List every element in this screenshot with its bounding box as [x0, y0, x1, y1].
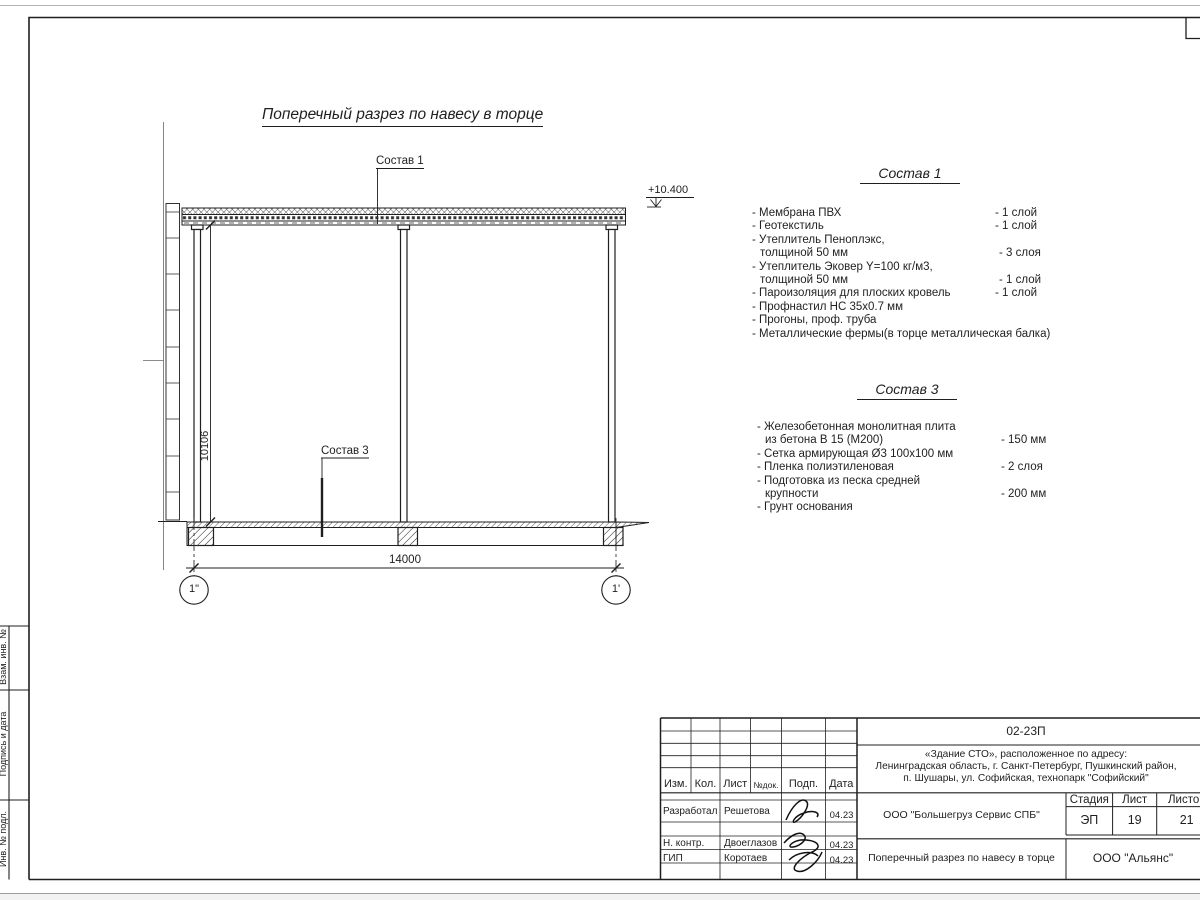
tb-header-data: Дата — [826, 778, 858, 790]
spec-line: - Прогоны, проф. труба — [752, 314, 876, 327]
tb-date-gip: 04.23 — [827, 855, 857, 866]
dimension-width: 14000 — [380, 554, 430, 566]
spec-line: толщиной 50 мм — [760, 274, 848, 287]
spec-line: из бетона В 15 (М200) — [765, 434, 883, 447]
spec-value: - 1 слой — [995, 207, 1037, 220]
tb-name-gip: Коротаев — [724, 853, 767, 864]
spec-line: крупности — [765, 488, 818, 501]
tb-project-line3: п. Шушары, ул. Софийская, технопарк "Соф… — [857, 773, 1195, 784]
tb-sheets-label: Листов — [1157, 794, 1200, 806]
spec-line: - Грунт основания — [757, 501, 853, 514]
spec-value: - 1 слой — [999, 274, 1041, 287]
outside-sheet — [0, 894, 1200, 900]
tb-date-control: 04.23 — [827, 840, 857, 851]
spec1-heading: Состав 1 — [860, 165, 960, 184]
tb-header-list: Лист — [720, 778, 751, 790]
tb-sheet-title: Поперечный разрез по навесу в торце — [857, 852, 1066, 864]
elevation-mark — [646, 198, 694, 208]
spec-line: - Металлические фермы(в торце металличес… — [752, 328, 1050, 341]
tb-name-control: Двоеглазов — [724, 838, 777, 849]
tb-stage-label: Стадия — [1066, 794, 1113, 806]
corner-stamp-box — [1186, 18, 1200, 39]
drawing-title: Поперечный разрез по навесу в торце — [262, 106, 543, 127]
tb-doc-number: 02-23П — [857, 724, 1195, 738]
spec-value: - 3 слоя — [999, 247, 1041, 260]
tb-company: ООО "Альянс" — [1066, 851, 1200, 865]
spec-value: - 1 слой — [995, 220, 1037, 233]
tb-header-kol: Кол. — [691, 778, 720, 790]
columns — [192, 225, 618, 522]
spec-line: толщиной 50 мм — [760, 247, 848, 260]
spec-line: - Пароизоляция для плоских кровель — [752, 287, 951, 300]
side-stamp-label: Подпись и дата — [0, 704, 8, 784]
tb-sheets-value: 21 — [1157, 813, 1200, 827]
drawing-sheet: Поперечный разрез по навесу в торце Сост… — [0, 0, 1200, 900]
leader-label-sostav1: Состав 1 — [376, 155, 424, 167]
tb-name-developer: Решетова — [724, 806, 770, 817]
tb-role-developer: Разработал — [663, 806, 717, 817]
tb-customer: ООО "Большегруз Сервис СПБ" — [857, 809, 1066, 821]
tb-header-izm: Изм. — [661, 778, 692, 790]
tb-role-control: Н. контр. — [663, 838, 704, 849]
spec-value: - 1 слой — [995, 287, 1037, 300]
leader-label-sostav3: Состав 3 — [321, 445, 369, 457]
side-stamp-label: Взам. инв. № — [0, 627, 8, 687]
axis-label-left: 1" — [180, 583, 208, 595]
footing-right — [604, 528, 624, 546]
dimension-height: 10106 — [199, 424, 211, 468]
signature-developer — [786, 800, 818, 822]
footing-middle — [398, 528, 418, 546]
tb-header-doc: №док. — [751, 780, 782, 790]
roof-section — [182, 208, 626, 225]
spec-value: - 150 мм — [1001, 434, 1046, 447]
elevation-label: +10.400 — [648, 184, 688, 196]
tb-project-line1: «Здание СТО», расположенное по адресу: — [857, 749, 1195, 760]
axis-label-right: 1' — [602, 583, 630, 595]
spec3-heading: Состав 3 — [857, 381, 957, 400]
spec-line: - Пленка полиэтиленовая — [757, 461, 894, 474]
tb-project-line2: Ленинградская область, г. Санкт-Петербур… — [857, 761, 1195, 772]
adjacent-wall — [143, 122, 180, 570]
spec-line: - Утеплитель Пеноплэкс, — [752, 234, 885, 247]
spec-line: - Профнастил НС 35х0.7 мм — [752, 301, 903, 314]
tb-date-developer: 04.23 — [827, 810, 857, 821]
tb-role-gip: ГИП — [663, 853, 683, 864]
spec-value: - 200 мм — [1001, 488, 1046, 501]
spec-line: - Геотекстиль — [752, 220, 824, 233]
signature-control — [784, 833, 822, 871]
side-stamp-label: Инв. № подл. — [0, 804, 8, 874]
tb-header-podp: Подп. — [782, 778, 826, 790]
footing-left — [189, 528, 214, 546]
spec-value: - 2 слоя — [1001, 461, 1043, 474]
spec-line: - Железобетонная монолитная плита — [757, 421, 956, 434]
spec-line: - Утеплитель Эковер Y=100 кг/м3, — [752, 261, 933, 274]
tb-sheet-label: Лист — [1113, 794, 1157, 806]
tb-sheet-value: 19 — [1113, 813, 1157, 827]
spec-line: - Сетка армирующая Ø3 100х100 мм — [757, 448, 953, 461]
spec-line: - Подготовка из песка средней — [757, 475, 920, 488]
spec-line: - Мембрана ПВХ — [752, 207, 841, 220]
floor-slab — [158, 522, 649, 546]
tb-stage-value: ЭП — [1066, 813, 1113, 827]
